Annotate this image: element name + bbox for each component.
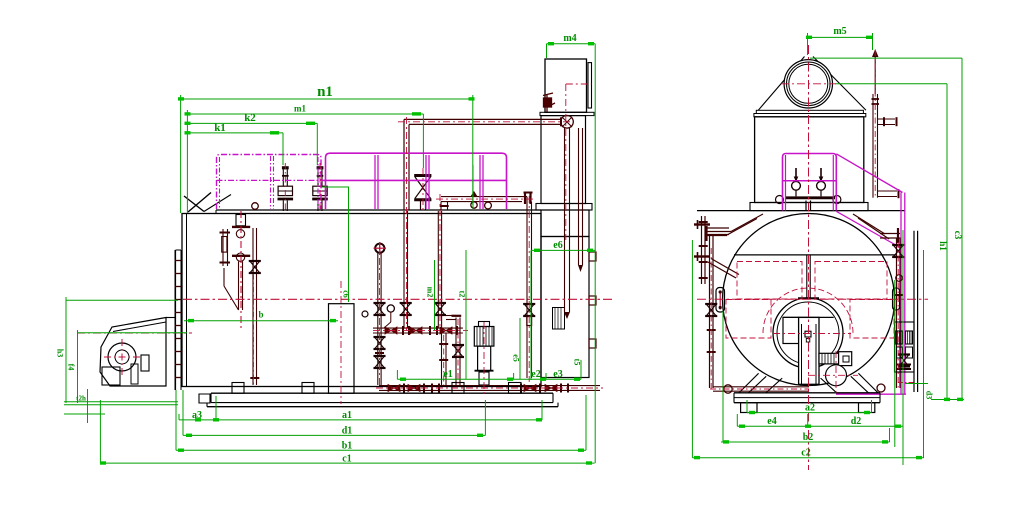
svg-text:c2: c2 <box>801 448 810 459</box>
svg-text:e6: e6 <box>553 240 562 251</box>
svg-text:b: b <box>258 310 263 320</box>
svg-text:k1: k1 <box>214 122 226 134</box>
svg-text:c6: c6 <box>342 290 351 298</box>
svg-text:b1: b1 <box>342 441 353 452</box>
svg-text:h3: h3 <box>56 349 65 357</box>
svg-text:d1: d1 <box>342 426 353 437</box>
svg-text:d3: d3 <box>925 391 934 399</box>
svg-text:a2: a2 <box>805 403 815 414</box>
svg-text:h1: h1 <box>938 241 948 251</box>
svg-text:m4: m4 <box>563 33 576 44</box>
svg-text:e5: e5 <box>512 354 521 362</box>
svg-text:e2: e2 <box>531 369 540 380</box>
svg-text:m5: m5 <box>833 26 846 37</box>
svg-text:c1: c1 <box>342 454 351 465</box>
svg-text:m1: m1 <box>294 104 306 114</box>
svg-text:t2: t2 <box>458 291 467 298</box>
svg-text:a1: a1 <box>342 410 352 421</box>
svg-text:b2: b2 <box>803 432 814 443</box>
svg-text:e3: e3 <box>553 369 562 380</box>
svg-text:e4: e4 <box>767 416 776 427</box>
svg-text:e1: e1 <box>443 369 452 380</box>
svg-text:t2h: t2h <box>76 395 86 403</box>
svg-text:n1: n1 <box>317 84 333 100</box>
svg-text:f4: f4 <box>67 364 76 371</box>
svg-text:k2: k2 <box>244 112 256 124</box>
svg-text:d2: d2 <box>851 416 862 427</box>
svg-text:c3: c3 <box>953 231 963 240</box>
svg-text:t5: t5 <box>573 359 582 366</box>
svg-text:a3: a3 <box>192 410 202 421</box>
svg-text:m2: m2 <box>426 287 435 298</box>
